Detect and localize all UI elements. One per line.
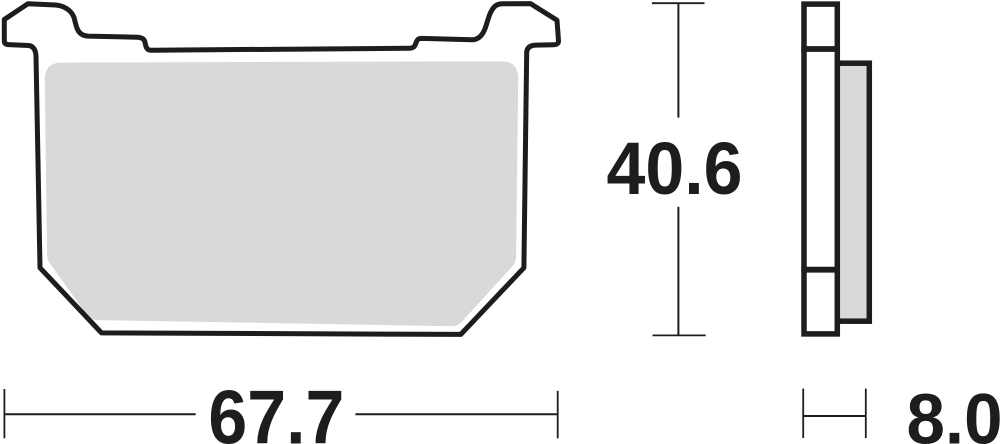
- svg-text:40.6: 40.6: [607, 127, 743, 210]
- svg-text:8.0: 8.0: [907, 380, 1000, 444]
- svg-text:67.7: 67.7: [208, 376, 344, 444]
